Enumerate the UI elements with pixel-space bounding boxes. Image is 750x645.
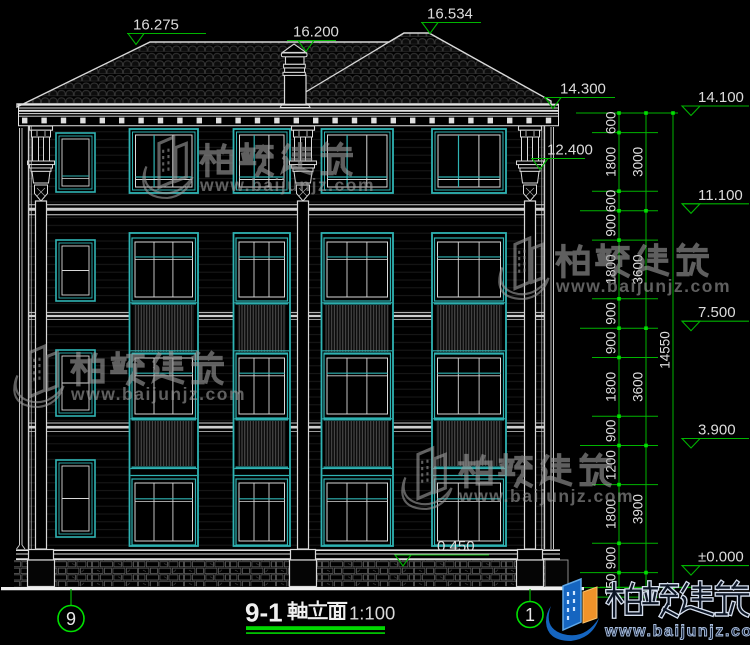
svg-text:12.400: 12.400	[547, 142, 593, 159]
svg-text:600: 600	[604, 190, 619, 213]
svg-text:16.275: 16.275	[133, 17, 179, 34]
svg-text:1:100: 1:100	[349, 603, 395, 624]
svg-text:0.450: 0.450	[437, 538, 475, 555]
svg-text:3600: 3600	[631, 372, 646, 402]
svg-text:16.200: 16.200	[293, 24, 339, 41]
svg-text:1: 1	[525, 605, 535, 625]
svg-text:14550: 14550	[658, 331, 673, 369]
svg-text:www.baijunjz.com: www.baijunjz.com	[199, 175, 375, 195]
svg-text:900: 900	[604, 547, 619, 570]
svg-text:900: 900	[604, 214, 619, 237]
svg-text:11.100: 11.100	[698, 187, 743, 204]
svg-text:3000: 3000	[631, 147, 646, 177]
svg-text:www.baijunjz.com: www.baijunjz.com	[555, 276, 731, 296]
svg-text:600: 600	[604, 112, 619, 135]
svg-text:900: 900	[604, 302, 619, 325]
svg-text:9-1: 9-1	[245, 598, 283, 628]
svg-text:±0.000: ±0.000	[698, 549, 744, 566]
svg-text:9: 9	[66, 609, 76, 629]
svg-text:www.baijunjz.com: www.baijunjz.com	[458, 486, 634, 506]
svg-text:16.534: 16.534	[427, 6, 473, 23]
svg-text:900: 900	[604, 420, 619, 443]
svg-text:900: 900	[604, 332, 619, 355]
svg-text:www.baijunjz.com: www.baijunjz.com	[70, 384, 246, 404]
svg-text:1800: 1800	[604, 147, 619, 177]
svg-text:3.900: 3.900	[698, 422, 736, 439]
svg-text:14.300: 14.300	[560, 81, 606, 98]
svg-text:www.baijunjz.com: www.baijunjz.com	[604, 623, 750, 640]
svg-text:1800: 1800	[604, 372, 619, 402]
svg-text:7.500: 7.500	[698, 304, 736, 321]
svg-text:14.100: 14.100	[698, 89, 744, 106]
